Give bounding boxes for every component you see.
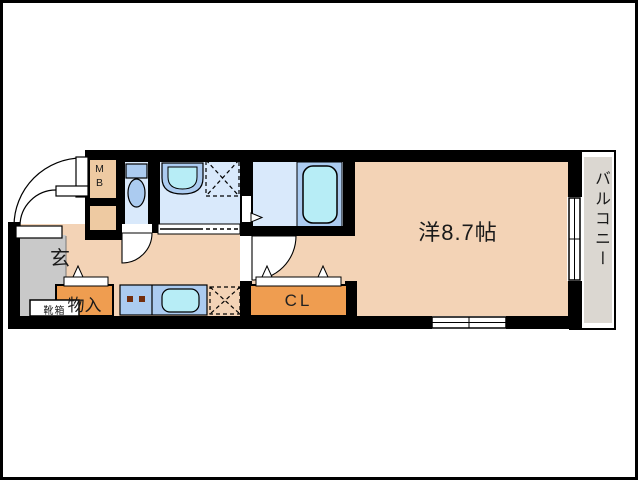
closet-label: CL bbox=[250, 291, 347, 311]
pipe-space-panel bbox=[90, 206, 116, 230]
kitchen-sink-icon bbox=[162, 289, 199, 312]
floorplan-image: 洋8.7帖 バルコニー 玄 靴箱 物入 CL MB bbox=[0, 0, 638, 480]
wall-bottom-right bbox=[506, 316, 582, 329]
washroom-sliding-door bbox=[158, 224, 240, 234]
meter-box-label: MB bbox=[92, 163, 107, 190]
entrance-door-child-leaf bbox=[56, 186, 88, 196]
wall-toilet-washroom bbox=[148, 158, 160, 233]
washbasin-icon bbox=[162, 163, 203, 194]
wall-bottom-left bbox=[8, 316, 432, 329]
stove-burner-icon bbox=[127, 296, 133, 302]
wall-bath-right bbox=[343, 158, 355, 236]
balcony-label: バルコニー bbox=[588, 170, 612, 320]
wall-right-upper bbox=[568, 150, 582, 197]
bathtub-icon bbox=[297, 162, 342, 228]
bottom-window bbox=[432, 317, 506, 328]
entrance-label: 玄 bbox=[50, 242, 70, 271]
balcony-window bbox=[567, 197, 583, 281]
main-room-label: 洋8.7帖 bbox=[398, 215, 518, 247]
stove-burner-icon bbox=[139, 296, 145, 302]
storage-label: 物入 bbox=[56, 291, 113, 316]
kitchen-unit bbox=[120, 285, 207, 315]
floorplan-drawing bbox=[0, 0, 638, 480]
wall-bath-bottom bbox=[240, 226, 355, 236]
toilet-icon bbox=[126, 164, 147, 207]
entrance-step bbox=[16, 226, 62, 238]
